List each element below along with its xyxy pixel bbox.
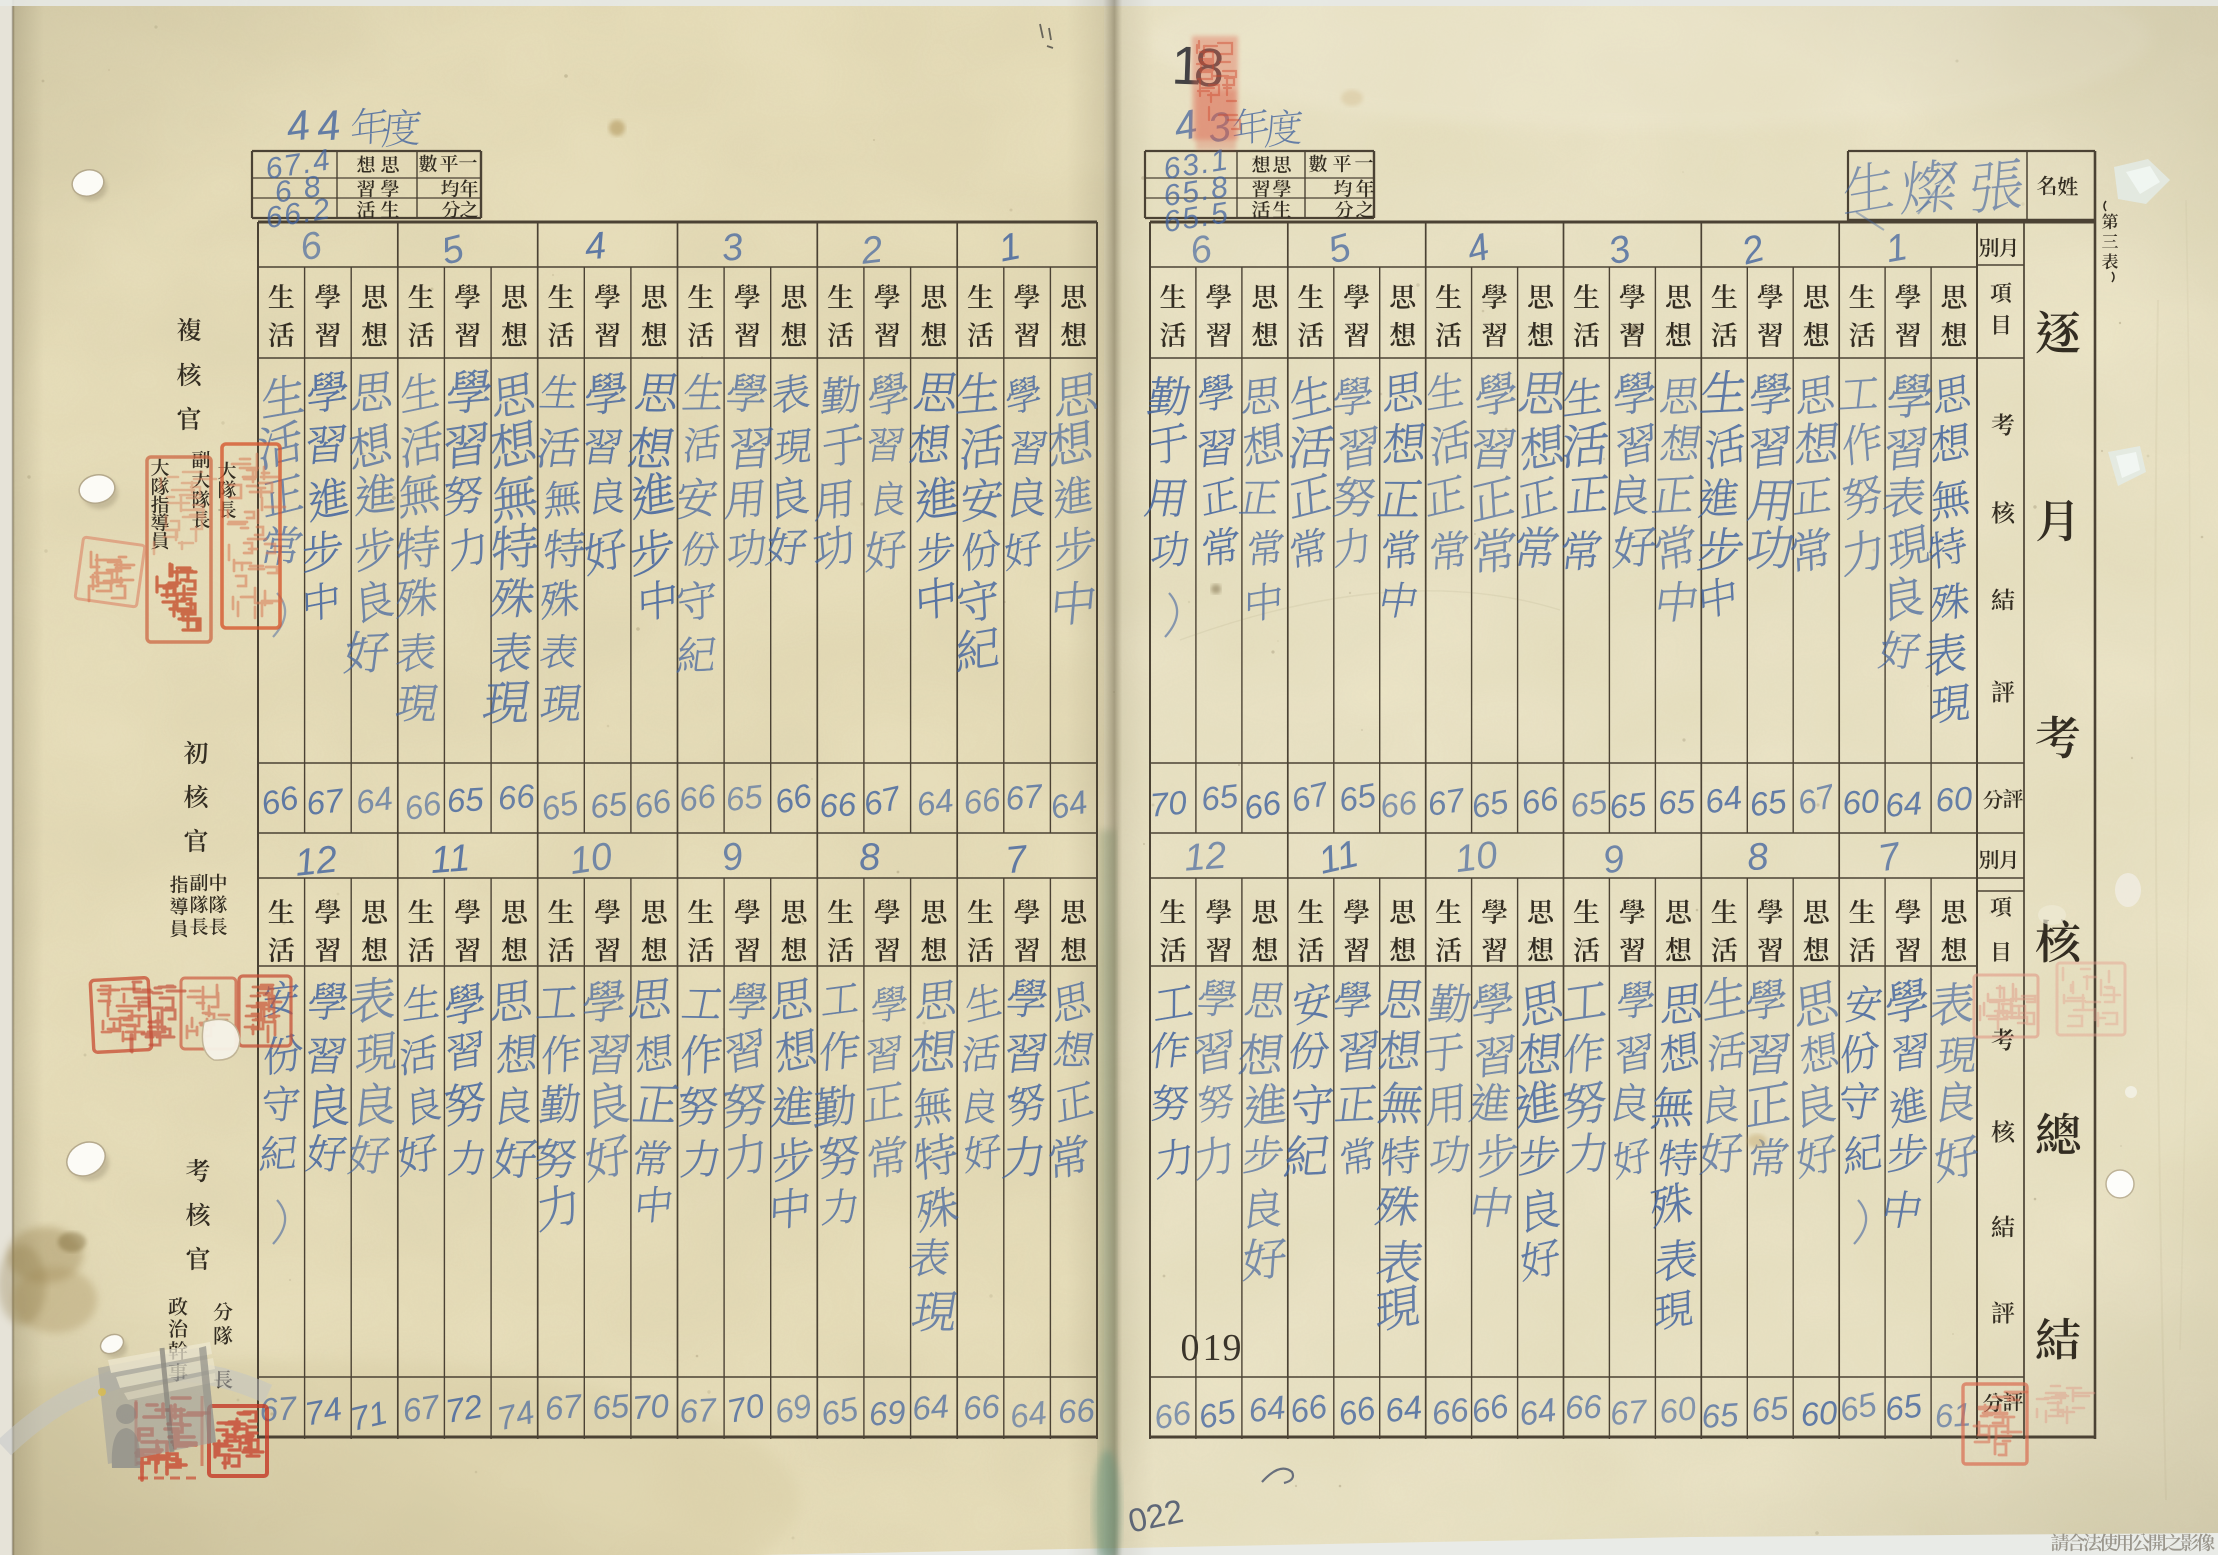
svg-text:65: 65 — [1199, 777, 1240, 818]
svg-text:66: 66 — [1378, 783, 1420, 825]
svg-text:72: 72 — [443, 1387, 485, 1430]
svg-text:65: 65 — [1568, 783, 1610, 824]
svg-text:74: 74 — [302, 1390, 345, 1433]
svg-text:60: 60 — [1799, 1394, 1839, 1434]
svg-text:4: 4 — [583, 225, 608, 269]
svg-text:67: 67 — [304, 781, 346, 822]
svg-text:66: 66 — [676, 777, 718, 819]
svg-text:65: 65 — [724, 778, 765, 819]
svg-text:60: 60 — [1934, 779, 1974, 818]
svg-text:66: 66 — [496, 777, 536, 817]
svg-text:66: 66 — [1241, 783, 1285, 826]
svg-text:8: 8 — [857, 836, 881, 879]
svg-text:67: 67 — [1425, 781, 1469, 823]
svg-text:9: 9 — [1223, 1327, 1242, 1369]
svg-text:66: 66 — [961, 780, 1002, 821]
svg-text:64: 64 — [1702, 778, 1744, 820]
svg-text:1: 1 — [1203, 1327, 1222, 1369]
svg-text:65: 65 — [1657, 783, 1696, 821]
svg-text:67: 67 — [1609, 1392, 1650, 1432]
svg-text:70: 70 — [631, 1387, 671, 1427]
svg-text:66: 66 — [1519, 779, 1562, 822]
svg-text:0: 0 — [1181, 1327, 1200, 1369]
svg-text:64: 64 — [1516, 1391, 1558, 1433]
svg-text:64: 64 — [1247, 1388, 1288, 1429]
svg-text:65: 65 — [1336, 776, 1379, 819]
svg-text:65: 65 — [1469, 782, 1512, 825]
svg-text:66: 66 — [1151, 1393, 1194, 1436]
svg-text:67: 67 — [1004, 777, 1046, 817]
svg-text:65: 65 — [1748, 782, 1789, 823]
svg-text:65: 65 — [588, 785, 629, 826]
svg-text:65: 65 — [591, 1387, 631, 1427]
svg-text:69: 69 — [868, 1393, 907, 1433]
svg-text:66: 66 — [1287, 1387, 1331, 1430]
svg-text:66: 66 — [1429, 1390, 1471, 1432]
svg-text:8: 8 — [1745, 836, 1770, 880]
svg-text:10: 10 — [567, 835, 615, 883]
svg-text:66: 66 — [818, 785, 858, 824]
svg-text:66: 66 — [1057, 1391, 1097, 1430]
svg-text:60: 60 — [1657, 1389, 1699, 1431]
svg-text:65: 65 — [818, 1389, 862, 1432]
svg-text:65: 65 — [1883, 1386, 1925, 1427]
svg-text:64: 64 — [353, 779, 395, 821]
svg-text:61: 61 — [1934, 1396, 1973, 1435]
svg-text:65: 65 — [1608, 785, 1649, 825]
svg-text:11: 11 — [429, 837, 472, 882]
svg-text:64: 64 — [1047, 783, 1090, 826]
svg-text:64: 64 — [1007, 1394, 1049, 1436]
svg-text:67: 67 — [543, 1387, 585, 1427]
svg-text:12: 12 — [293, 839, 340, 885]
svg-text:66: 66 — [962, 1387, 1002, 1427]
svg-text:65: 65 — [1750, 1389, 1790, 1429]
svg-text:67: 67 — [400, 1387, 443, 1429]
svg-text:64: 64 — [1884, 784, 1923, 824]
svg-text:12: 12 — [1183, 835, 1228, 880]
svg-text:3: 3 — [720, 226, 745, 270]
svg-text:60: 60 — [1841, 782, 1881, 822]
svg-text:70: 70 — [1148, 783, 1189, 823]
svg-text:67: 67 — [678, 1391, 718, 1430]
svg-text:64: 64 — [914, 781, 956, 823]
svg-text:64: 64 — [910, 1387, 950, 1427]
svg-text:65: 65 — [1700, 1396, 1740, 1435]
svg-text:64: 64 — [1383, 1388, 1424, 1429]
svg-text:65: 65 — [446, 780, 485, 819]
svg-text:10: 10 — [1452, 834, 1499, 881]
svg-text:66: 66 — [1564, 1388, 1603, 1426]
